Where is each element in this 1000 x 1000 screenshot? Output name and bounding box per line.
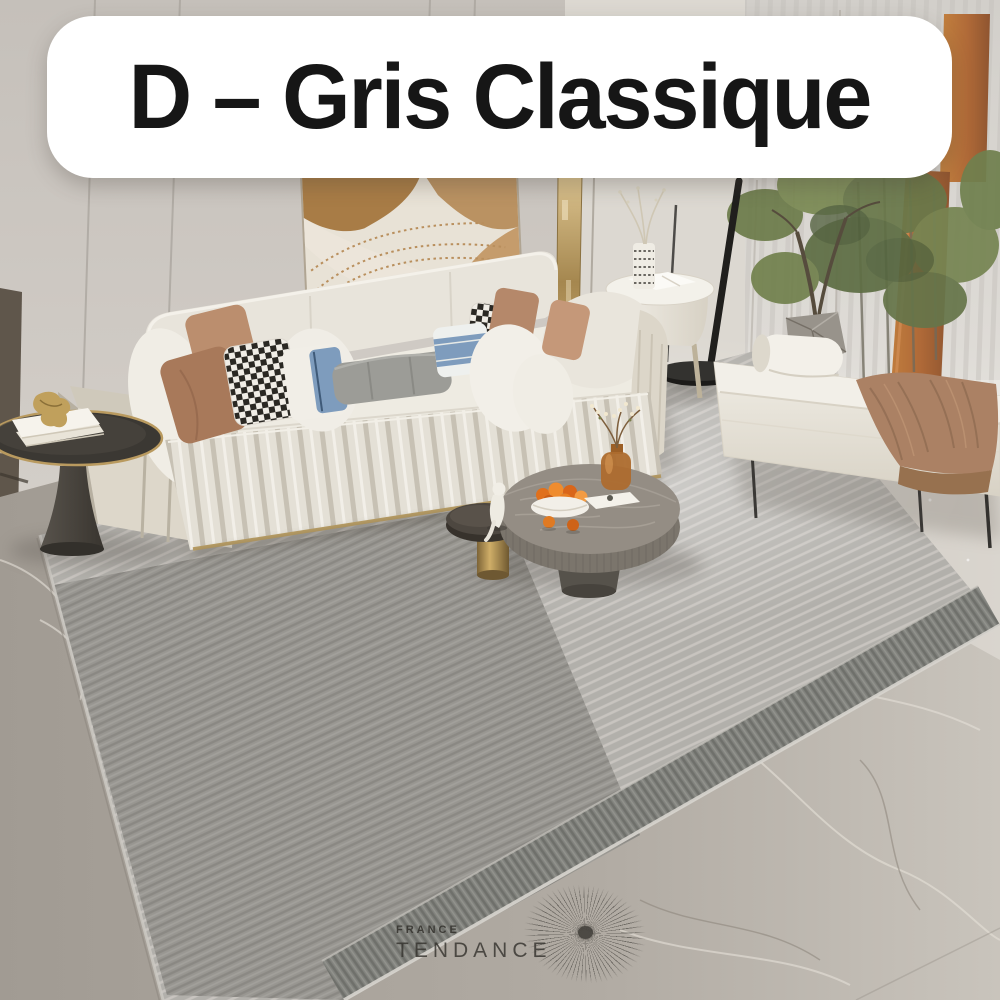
product-photo: D – Gris Classique FRANCE TENDANCE [0, 0, 1000, 1000]
watermark-line1: FRANCE [396, 924, 552, 936]
banner-label: D – Gris Classique [129, 44, 871, 150]
title-banner: D – Gris Classique [47, 16, 952, 178]
starburst-core [578, 926, 593, 939]
watermark-line2: TENDANCE [396, 939, 552, 963]
brand-watermark: FRANCE TENDANCE [396, 924, 552, 963]
stone-table-top [500, 464, 680, 554]
